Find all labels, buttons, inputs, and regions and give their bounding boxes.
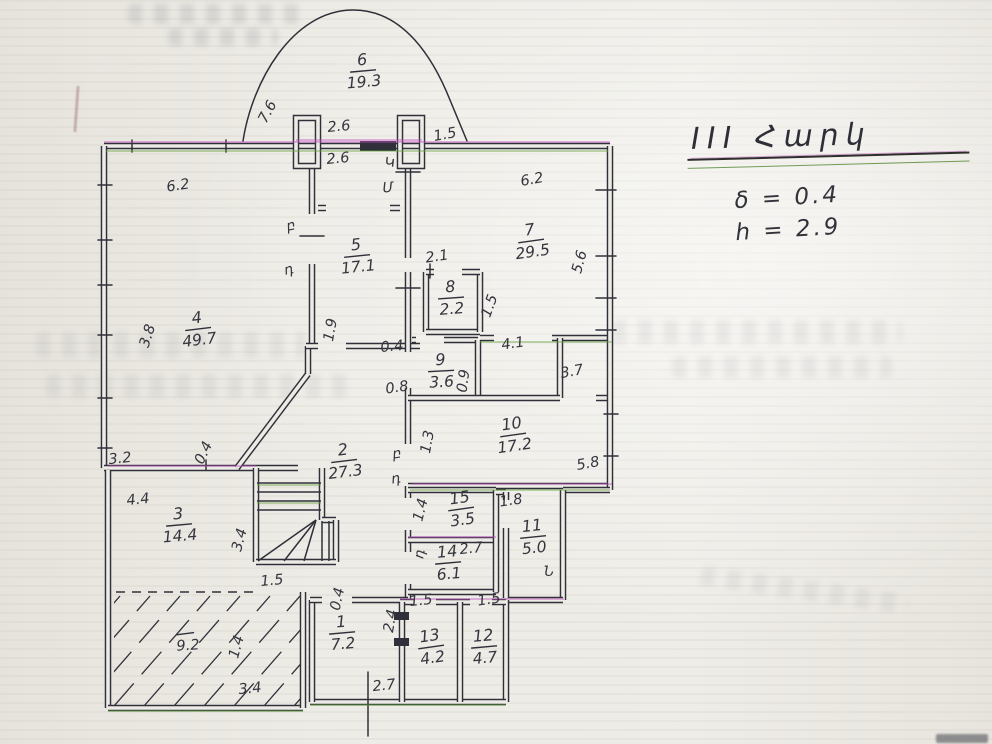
svg-text:49.7: 49.7 <box>181 329 218 351</box>
svg-text:6: 6 <box>356 50 368 70</box>
svg-text:14: 14 <box>436 541 458 562</box>
svg-text:9.2: 9.2 <box>176 637 200 655</box>
svg-text:2.7: 2.7 <box>372 677 397 695</box>
dimension-label: 5.6 <box>569 249 590 275</box>
svg-text:13: 13 <box>418 625 441 647</box>
dimension-label: 0.4 <box>192 439 216 467</box>
svg-text:27.3: 27.3 <box>327 461 363 483</box>
svg-text:2.1: 2.1 <box>424 247 449 266</box>
dimension-label: 1.5 <box>409 592 434 610</box>
dimension-label: 0.4 <box>328 586 348 612</box>
scanned-floorplan-page: 17.2227.3314.4449.7517.1619.3729.582.293… <box>0 0 992 744</box>
svg-text:2.6: 2.6 <box>327 118 351 136</box>
door-letter-mark: Մ <box>382 179 395 196</box>
scan-color-fringes <box>104 140 612 711</box>
room-label: 517.1 <box>338 233 377 277</box>
svg-text:1.9: 1.9 <box>321 317 341 342</box>
svg-text:1.3: 1.3 <box>418 429 438 454</box>
svg-text:0.4: 0.4 <box>192 439 216 467</box>
door-letter-mark: դ <box>411 548 428 560</box>
staircase <box>257 483 329 561</box>
svg-text:3: 3 <box>172 504 184 524</box>
room-label: 729.5 <box>511 218 551 263</box>
dimension-label: 6.2 <box>519 170 544 190</box>
walls-layer <box>104 118 612 708</box>
svg-text:1.5: 1.5 <box>409 592 434 610</box>
dimension-label: 3.4 <box>238 680 263 698</box>
room-label: 314.4 <box>160 503 198 547</box>
door-letter-mark: դ <box>283 261 295 279</box>
svg-text:դ: դ <box>411 548 428 560</box>
room-label: 124.7 <box>469 625 498 668</box>
dimension-label: 4.4 <box>126 491 151 509</box>
thin-lines-layer <box>98 10 618 736</box>
svg-text:դ: դ <box>390 470 401 487</box>
floor-title: III Հարկ <box>686 114 987 157</box>
svg-text:4.1: 4.1 <box>500 334 525 353</box>
svg-text:7: 7 <box>523 219 537 239</box>
dimension-label: 2.4 <box>381 608 401 633</box>
svg-text:0.4: 0.4 <box>380 338 404 356</box>
dimension-label: 1.9 <box>321 317 341 342</box>
svg-text:2.2: 2.2 <box>439 299 465 319</box>
door-letter-mark: Կ <box>384 155 396 172</box>
dimension-label: 0.8 <box>384 378 409 397</box>
svg-text:5: 5 <box>350 235 362 255</box>
floorplan-drawing: 17.2227.3314.4449.7517.1619.3729.582.293… <box>0 0 992 744</box>
dimension-label: 7.6 <box>256 98 281 126</box>
room-label: 449.7 <box>178 306 217 351</box>
svg-text:3.6: 3.6 <box>429 372 455 391</box>
svg-text:5.6: 5.6 <box>569 249 590 275</box>
svg-text:2.6: 2.6 <box>326 150 350 168</box>
dimension-label: 1.5 <box>476 590 501 609</box>
room-label: 115.0 <box>518 515 548 558</box>
svg-text:5.8: 5.8 <box>575 454 600 474</box>
svg-text:4: 4 <box>191 308 203 328</box>
svg-text:Կ: Կ <box>384 155 396 172</box>
svg-text:17.2: 17.2 <box>496 435 533 458</box>
svg-text:11: 11 <box>521 515 543 536</box>
svg-text:15: 15 <box>448 487 471 509</box>
room-label: 17.2 <box>327 611 356 654</box>
svg-text:1.4: 1.4 <box>410 497 431 523</box>
svg-text:3.5: 3.5 <box>449 509 476 530</box>
svg-text:17.1: 17.1 <box>340 256 376 278</box>
svg-text:12: 12 <box>472 625 494 646</box>
room-label: 93.6 <box>427 349 455 391</box>
room-label: 1017.2 <box>493 412 533 457</box>
svg-text:0.4: 0.4 <box>328 586 348 612</box>
room-label: 227.3 <box>324 438 363 483</box>
svg-text:3.4: 3.4 <box>238 680 263 698</box>
svg-text:5.0: 5.0 <box>521 538 548 558</box>
svg-text:8: 8 <box>445 277 456 297</box>
svg-text:9: 9 <box>435 350 446 370</box>
svg-text:14.4: 14.4 <box>162 525 198 546</box>
svg-text:19.3: 19.3 <box>346 71 382 92</box>
door-letter-mark: դ <box>390 470 401 487</box>
svg-text:1.8: 1.8 <box>498 491 523 510</box>
svg-text:դ: դ <box>283 261 295 279</box>
dimension-label: 1.3 <box>418 429 438 454</box>
svg-text:2.7: 2.7 <box>459 540 484 558</box>
svg-text:1.5: 1.5 <box>476 590 501 609</box>
dimension-label: 9.2 <box>176 632 200 655</box>
svg-text:բ: բ <box>391 445 403 462</box>
svg-text:4.2: 4.2 <box>419 647 446 668</box>
door-letter-mark: բ <box>391 445 403 462</box>
svg-text:3.4: 3.4 <box>229 527 250 553</box>
svg-text:10: 10 <box>500 413 523 435</box>
dimension-label: 2.7 <box>372 677 397 695</box>
dimension-label: 3.2 <box>108 450 133 468</box>
dimension-label: 1.8 <box>498 491 523 510</box>
svg-text:0.8: 0.8 <box>384 378 409 397</box>
dimension-label: 2.1 <box>424 247 449 266</box>
dimension-label: 4.1 <box>500 334 525 353</box>
dimension-label: 2.6 <box>327 118 351 136</box>
svg-text:3.7: 3.7 <box>559 362 585 382</box>
dimension-label: 2.7 <box>459 540 484 558</box>
svg-text:29.5: 29.5 <box>514 241 551 264</box>
door-letter-mark: բ <box>284 217 297 235</box>
dimension-label: 2.6 <box>326 150 350 168</box>
dimension-label: 3.7 <box>559 362 585 382</box>
svg-text:7.6: 7.6 <box>256 98 281 126</box>
svg-text:3.8: 3.8 <box>137 323 159 350</box>
svg-text:2: 2 <box>337 440 349 460</box>
dimension-label: 6.2 <box>165 176 190 195</box>
svg-text:Մ: Մ <box>382 179 395 196</box>
svg-text:6.2: 6.2 <box>165 176 190 195</box>
dimension-label: 1.4 <box>410 497 431 523</box>
title-block: III Հարկ δ = 0.4 h = 2.9 <box>686 114 989 243</box>
svg-text:1: 1 <box>335 612 347 632</box>
door-letter-mark: Ն <box>544 564 554 580</box>
dimension-label: 3.8 <box>137 323 159 350</box>
svg-text:1.5: 1.5 <box>260 572 284 590</box>
dimension-label: 0.4 <box>380 338 404 356</box>
svg-text:4.7: 4.7 <box>472 648 498 668</box>
svg-text:բ: բ <box>284 217 297 235</box>
svg-text:4.4: 4.4 <box>126 491 151 509</box>
dimension-label: 0.9 <box>454 368 473 393</box>
svg-text:2.4: 2.4 <box>381 608 401 633</box>
svg-text:7.2: 7.2 <box>330 634 356 654</box>
dimension-label: 1.5 <box>260 572 284 590</box>
svg-text:3.2: 3.2 <box>108 450 133 468</box>
svg-text:0.9: 0.9 <box>454 368 473 393</box>
svg-text:6.1: 6.1 <box>436 564 462 584</box>
dimension-label: 5.8 <box>575 454 600 474</box>
dimension-label: 1.4 <box>226 634 247 660</box>
svg-text:6.2: 6.2 <box>519 170 544 190</box>
room-label: 134.2 <box>415 624 446 668</box>
svg-text:Ն: Ն <box>544 564 554 580</box>
dimension-label: 3.4 <box>229 527 250 553</box>
svg-text:1.4: 1.4 <box>226 634 247 660</box>
room-label: 82.2 <box>437 276 466 319</box>
room-label: 619.3 <box>344 49 382 93</box>
